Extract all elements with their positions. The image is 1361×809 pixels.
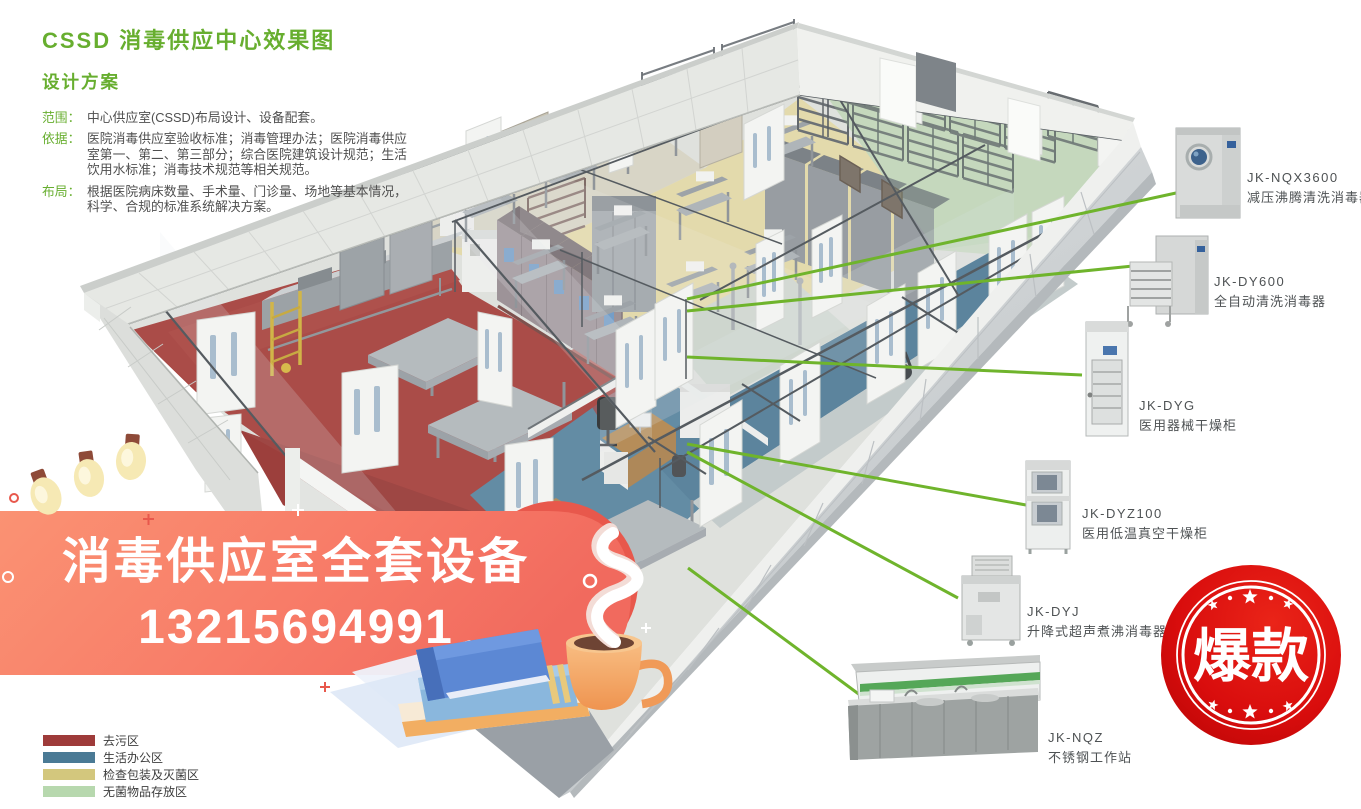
svg-text:医用低温真空干燥柜: 医用低温真空干燥柜	[1082, 526, 1208, 541]
svg-text:医用器械干燥柜: 医用器械干燥柜	[1139, 418, 1237, 433]
svg-text:JK-DYG: JK-DYG	[1139, 398, 1196, 413]
svg-text:JK-DYJ: JK-DYJ	[1027, 604, 1080, 619]
svg-text:爆款: 爆款	[1193, 624, 1309, 689]
svg-text:JK-NQX3600: JK-NQX3600	[1247, 170, 1339, 185]
svg-text:生活办公区: 生活办公区	[103, 750, 163, 765]
svg-text:检查包装及灭菌区: 检查包装及灭菌区	[103, 767, 199, 782]
svg-text:不锈钢工作站: 不锈钢工作站	[1048, 750, 1132, 765]
svg-text:JK-NQZ: JK-NQZ	[1048, 730, 1104, 745]
svg-text:减压沸腾清洗消毒器: 减压沸腾清洗消毒器	[1247, 190, 1361, 205]
svg-text:去污区: 去污区	[103, 734, 139, 748]
svg-text:13215694991: 13215694991	[138, 601, 454, 654]
svg-text:无菌物品存放区: 无菌物品存放区	[103, 784, 187, 799]
svg-text:全自动清洗消毒器: 全自动清洗消毒器	[1214, 294, 1326, 309]
svg-text:升降式超声煮沸消毒器: 升降式超声煮沸消毒器	[1027, 624, 1167, 639]
svg-text:JK-DY600: JK-DY600	[1214, 274, 1285, 289]
svg-text:JK-DYZ100: JK-DYZ100	[1082, 506, 1163, 521]
svg-text:消毒供应室全套设备: 消毒供应室全套设备	[62, 534, 530, 589]
